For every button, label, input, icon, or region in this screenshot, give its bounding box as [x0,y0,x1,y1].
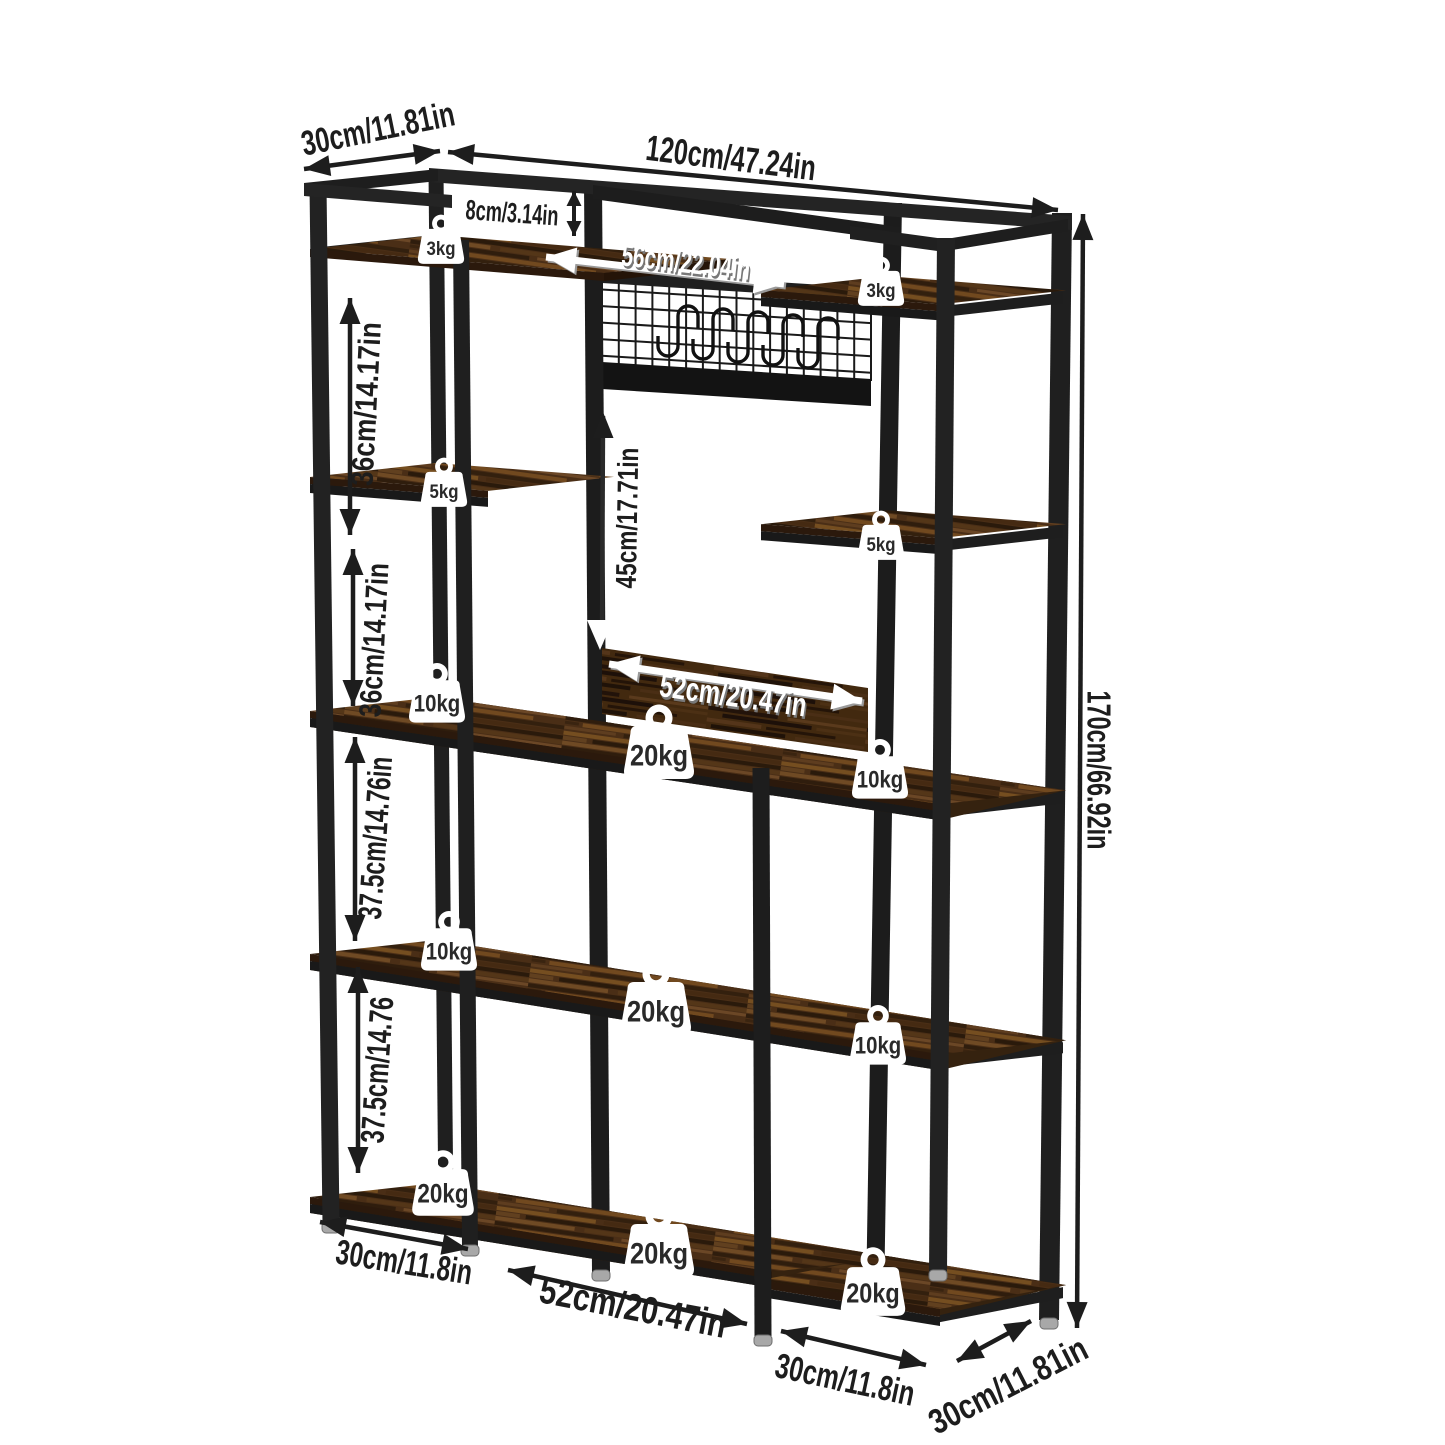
svg-text:20kg: 20kg [627,994,685,1027]
svg-text:10kg: 10kg [857,766,903,793]
svg-text:10kg: 10kg [414,690,460,717]
svg-text:5kg: 5kg [867,533,896,556]
svg-text:45cm/17.71in: 45cm/17.71in [609,447,645,588]
svg-text:20kg: 20kg [630,1236,688,1269]
svg-text:10kg: 10kg [426,938,472,965]
svg-text:20kg: 20kg [630,738,688,771]
svg-text:20kg: 20kg [846,1279,899,1309]
svg-text:3kg: 3kg [427,237,456,260]
svg-text:20kg: 20kg [417,1180,468,1209]
svg-text:10kg: 10kg [855,1032,901,1059]
svg-text:5kg: 5kg [430,480,459,503]
svg-text:8cm/3.14in: 8cm/3.14in [465,195,560,232]
svg-text:3kg: 3kg [867,279,896,302]
svg-text:170cm/66.92in: 170cm/66.92in [1080,691,1117,850]
